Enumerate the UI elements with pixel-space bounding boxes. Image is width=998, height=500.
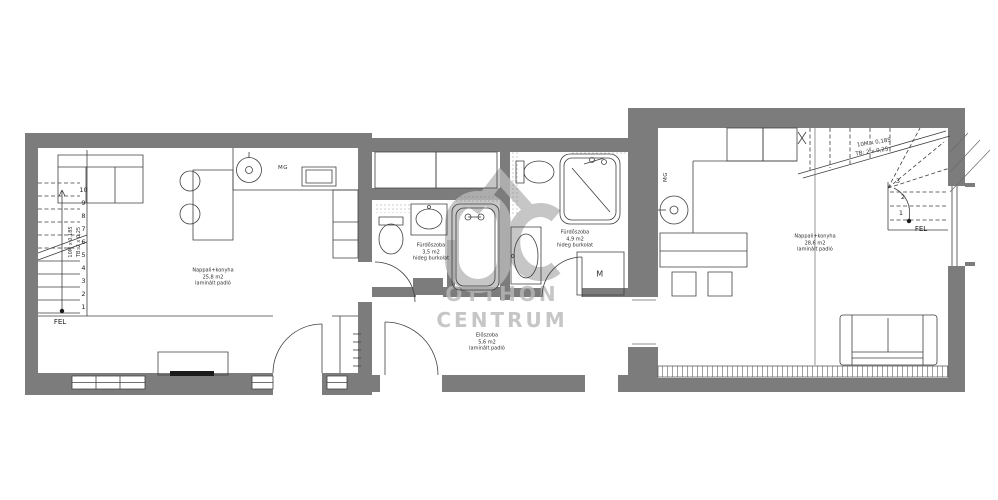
room-floor: laminált padló: [794, 246, 835, 253]
room-name: Fürdőszoba: [557, 229, 593, 236]
room-name: Fürdőszoba: [413, 242, 449, 249]
stair-step-number: 6: [81, 238, 85, 246]
room-label-bathroom-left: Fürdőszoba 3,5 m2 hideg burkolat: [413, 242, 449, 262]
stair-step-number: 3: [81, 277, 85, 285]
stair-step-number: 4: [81, 264, 85, 272]
stair-step-number: 7: [81, 225, 85, 233]
dishwasher-label-right: MG: [663, 172, 669, 182]
room-floor: hideg burkolat: [557, 242, 593, 249]
room-name: Nappali+konyha: [794, 233, 835, 240]
watermark-line2: CENTRUM: [436, 308, 567, 332]
stairs-up-label-left: FEL: [54, 318, 66, 326]
floorplan-canvas: OTTHON CENTRUM: [0, 0, 998, 500]
oc-logo: [0, 0, 998, 500]
washing-machine-label: M: [596, 270, 603, 279]
stair-step-number: 5: [81, 251, 85, 259]
room-label-left-living: Nappali+konyha 25,8 m2 laminált padló: [192, 267, 233, 287]
stair-step-number: 10: [79, 186, 87, 194]
room-label-bathroom-right: Fürdőszoba 4,9 m2 hideg burkolat: [557, 229, 593, 249]
room-label-right-living: Nappali+konyha 28,6 m2 laminált padló: [794, 233, 835, 253]
dishwasher-label-left: MG: [278, 165, 288, 171]
stair-step-number: 3: [896, 177, 900, 185]
otthon-centrum-watermark: OTTHON CENTRUM: [0, 0, 998, 500]
stair-step-number: 1: [899, 209, 903, 217]
room-floor: laminált padló: [192, 280, 233, 287]
watermark-line1: OTTHON: [445, 282, 558, 306]
room-floor: laminált padló: [469, 345, 505, 352]
stair-step-number: 1: [81, 303, 85, 311]
stair-step-number: 2: [81, 290, 85, 298]
stair-notation-left-1: 10M x 0,185: [68, 226, 74, 257]
stair-step-number: 9: [81, 199, 85, 207]
logo-letter-c: [513, 210, 556, 274]
room-name: Nappali+konyha: [192, 267, 233, 274]
room-label-hall: Előszoba 5,6 m2 laminált padló: [469, 332, 505, 352]
stair-step-number: 8: [81, 212, 85, 220]
stair-step-number: 2: [901, 193, 905, 201]
stairs-up-label-right: FEL: [915, 225, 927, 233]
room-floor: hideg burkolat: [413, 255, 449, 262]
